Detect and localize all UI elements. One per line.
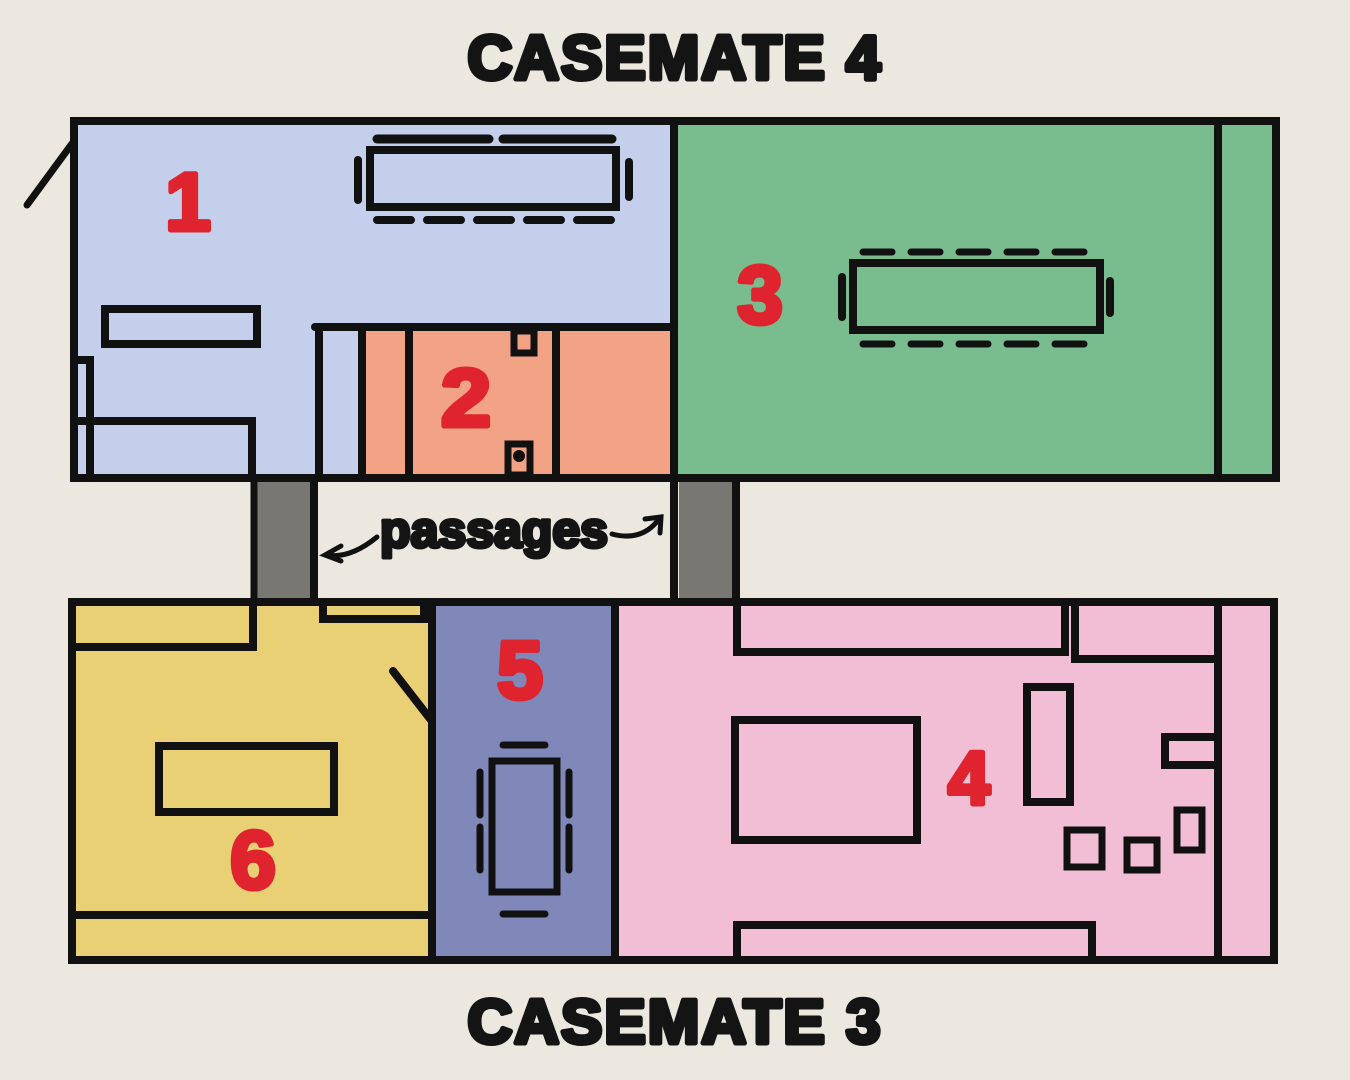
svg-text:5: 5: [497, 625, 543, 716]
svg-text:2: 2: [441, 353, 491, 444]
svg-text:1: 1: [165, 157, 211, 248]
svg-text:CASEMATE 4: CASEMATE 4: [467, 24, 882, 93]
svg-text:6: 6: [230, 815, 276, 906]
svg-text:CASEMATE 3: CASEMATE 3: [467, 988, 882, 1057]
svg-text:passages: passages: [380, 502, 608, 558]
svg-text:3: 3: [737, 250, 783, 341]
svg-text:4: 4: [948, 736, 990, 820]
